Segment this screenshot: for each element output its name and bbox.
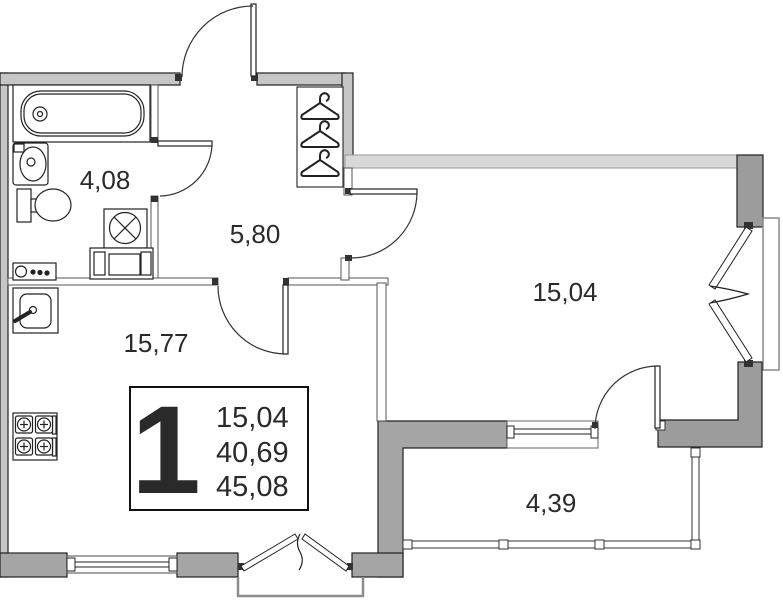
door-arc-icon (160, 145, 212, 196)
bathroom-wall-upper (151, 85, 158, 142)
washbasin-icon (13, 143, 48, 185)
burner (16, 416, 33, 433)
door-arc-icon (182, 6, 253, 77)
door-hinge (175, 74, 182, 81)
outer-sill-right (763, 218, 779, 370)
door-leaf (251, 4, 256, 76)
bay-window-outline (238, 577, 363, 596)
balcony-post (691, 540, 700, 549)
legend-rooms-count: 1 (131, 381, 201, 520)
entrance-door (175, 4, 258, 81)
balcony-post (499, 540, 508, 549)
top-wall-left (0, 73, 180, 85)
living-room-door (345, 188, 417, 261)
kitchen-window (67, 556, 177, 573)
balcony-area-label: 4,39 (526, 488, 577, 518)
balcony-window (507, 421, 598, 448)
hallway-area-label: 5,80 (230, 219, 281, 249)
floor-plan: 4,08 5,80 15,77 15,04 4,39 1 15,04 40,69… (0, 0, 783, 600)
legend-total-area-with-balcony: 45,08 (216, 471, 289, 503)
bottom-wall-left (0, 553, 67, 577)
door-arc-icon (218, 286, 286, 354)
balcony-post (691, 448, 700, 457)
window-glass (74, 562, 170, 567)
balcony-post (403, 540, 412, 549)
window-pillar-top-right (737, 155, 763, 227)
wardrobe (297, 87, 343, 187)
living-room-area-label: 15,04 (532, 277, 597, 307)
kitchen-sink-icon (13, 288, 58, 333)
window-glass (513, 429, 591, 434)
stove-icon (13, 413, 57, 460)
door-hinge (151, 137, 158, 143)
bay-casement-window (238, 534, 353, 571)
kitchen-door (212, 278, 289, 354)
casement-pane (302, 534, 349, 571)
door-arc-icon (352, 192, 417, 258)
burner (36, 416, 53, 433)
washing-machine-icon (104, 209, 147, 248)
door-hinge (345, 255, 352, 261)
room-west-wall-stub (341, 258, 349, 280)
top-wall-mid (257, 73, 345, 85)
kitchen-unit-icon (90, 248, 153, 279)
wardrobe-right-wall (342, 73, 353, 168)
door-hinge (151, 196, 158, 202)
door-hinge (283, 278, 289, 285)
casement-pane (241, 534, 298, 571)
toilet-icon (17, 189, 71, 222)
balcony-rail-bottom (403, 541, 699, 548)
balcony-rail-right (692, 448, 699, 548)
legend-living-area: 15,04 (216, 402, 289, 434)
balcony-post (595, 540, 604, 549)
bottom-wall-right (352, 553, 403, 577)
control-strip (13, 263, 56, 280)
kitchen-room-partition (377, 283, 386, 421)
bottom-wall-mid (177, 553, 238, 577)
balcony-door (592, 366, 665, 430)
hallway-bottom-wall (288, 278, 388, 285)
window-cap (169, 558, 177, 571)
bathtub-icon (13, 85, 150, 142)
burner (16, 438, 33, 455)
bathroom-door (151, 137, 212, 202)
casement-pane (709, 227, 752, 289)
window-cap (507, 426, 514, 438)
legend: 1 15,04 40,69 45,08 (130, 381, 308, 520)
casement-squiggle (298, 534, 303, 570)
door-leaf (158, 141, 212, 146)
bathroom-area-label: 4,08 (80, 165, 131, 195)
door-hinge (212, 278, 218, 285)
room-top-band-wall (345, 155, 737, 168)
window-cap (67, 558, 75, 571)
door-arc-icon (595, 366, 658, 429)
left-wall (0, 73, 8, 577)
floor-plan-svg: 4,08 5,80 15,77 15,04 4,39 1 15,04 40,69… (0, 0, 783, 600)
living-room-window (709, 222, 753, 367)
door-leaf (283, 285, 288, 354)
kitchen-living-area-label: 15,77 (123, 328, 188, 358)
door-leaf (350, 189, 417, 194)
casement-pane (709, 300, 752, 362)
door-leaf (655, 366, 660, 428)
burner (36, 438, 53, 455)
legend-total-area: 40,69 (216, 437, 289, 469)
window-pillar-bottom-right (658, 362, 762, 447)
